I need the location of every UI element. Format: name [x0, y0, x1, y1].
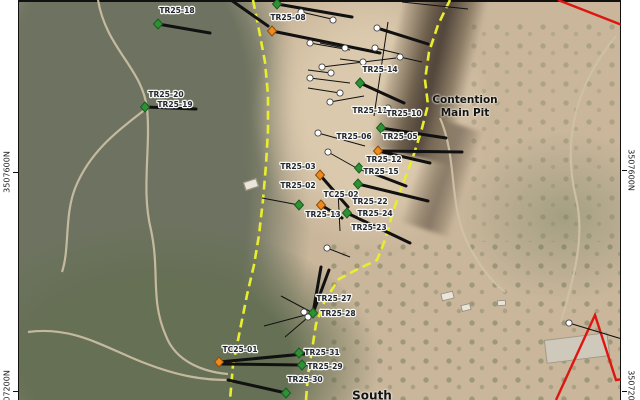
grid-tick — [622, 391, 627, 392]
south-label-text: South — [352, 389, 392, 400]
grid-label-left-3507600n: 3507600N — [3, 151, 12, 193]
terrain-scrub-speckle-right — [329, 242, 621, 400]
map-figure: TR25-18TR25-08TR25-20TR25-19TR25-14TR25-… — [0, 0, 640, 400]
building — [497, 300, 506, 307]
label-contention-main-pit: Contention Main Pit — [432, 94, 497, 120]
pit-label-line2: Main Pit — [432, 107, 497, 120]
label-south-pit: South — [352, 389, 392, 400]
grid-label-right-3507600n: 3507600N — [627, 149, 636, 191]
pit-label-line1: Contention — [432, 94, 497, 107]
grid-tick — [13, 391, 18, 392]
terrain-scrub-speckle-east — [469, 22, 621, 242]
grid-label-left-3507200n: 3507200N — [3, 370, 12, 400]
grid-label-right-3507200n: 3507200N — [627, 370, 636, 400]
map-canvas[interactable] — [18, 0, 621, 400]
grid-tick — [13, 172, 18, 173]
grid-tick — [622, 170, 627, 171]
